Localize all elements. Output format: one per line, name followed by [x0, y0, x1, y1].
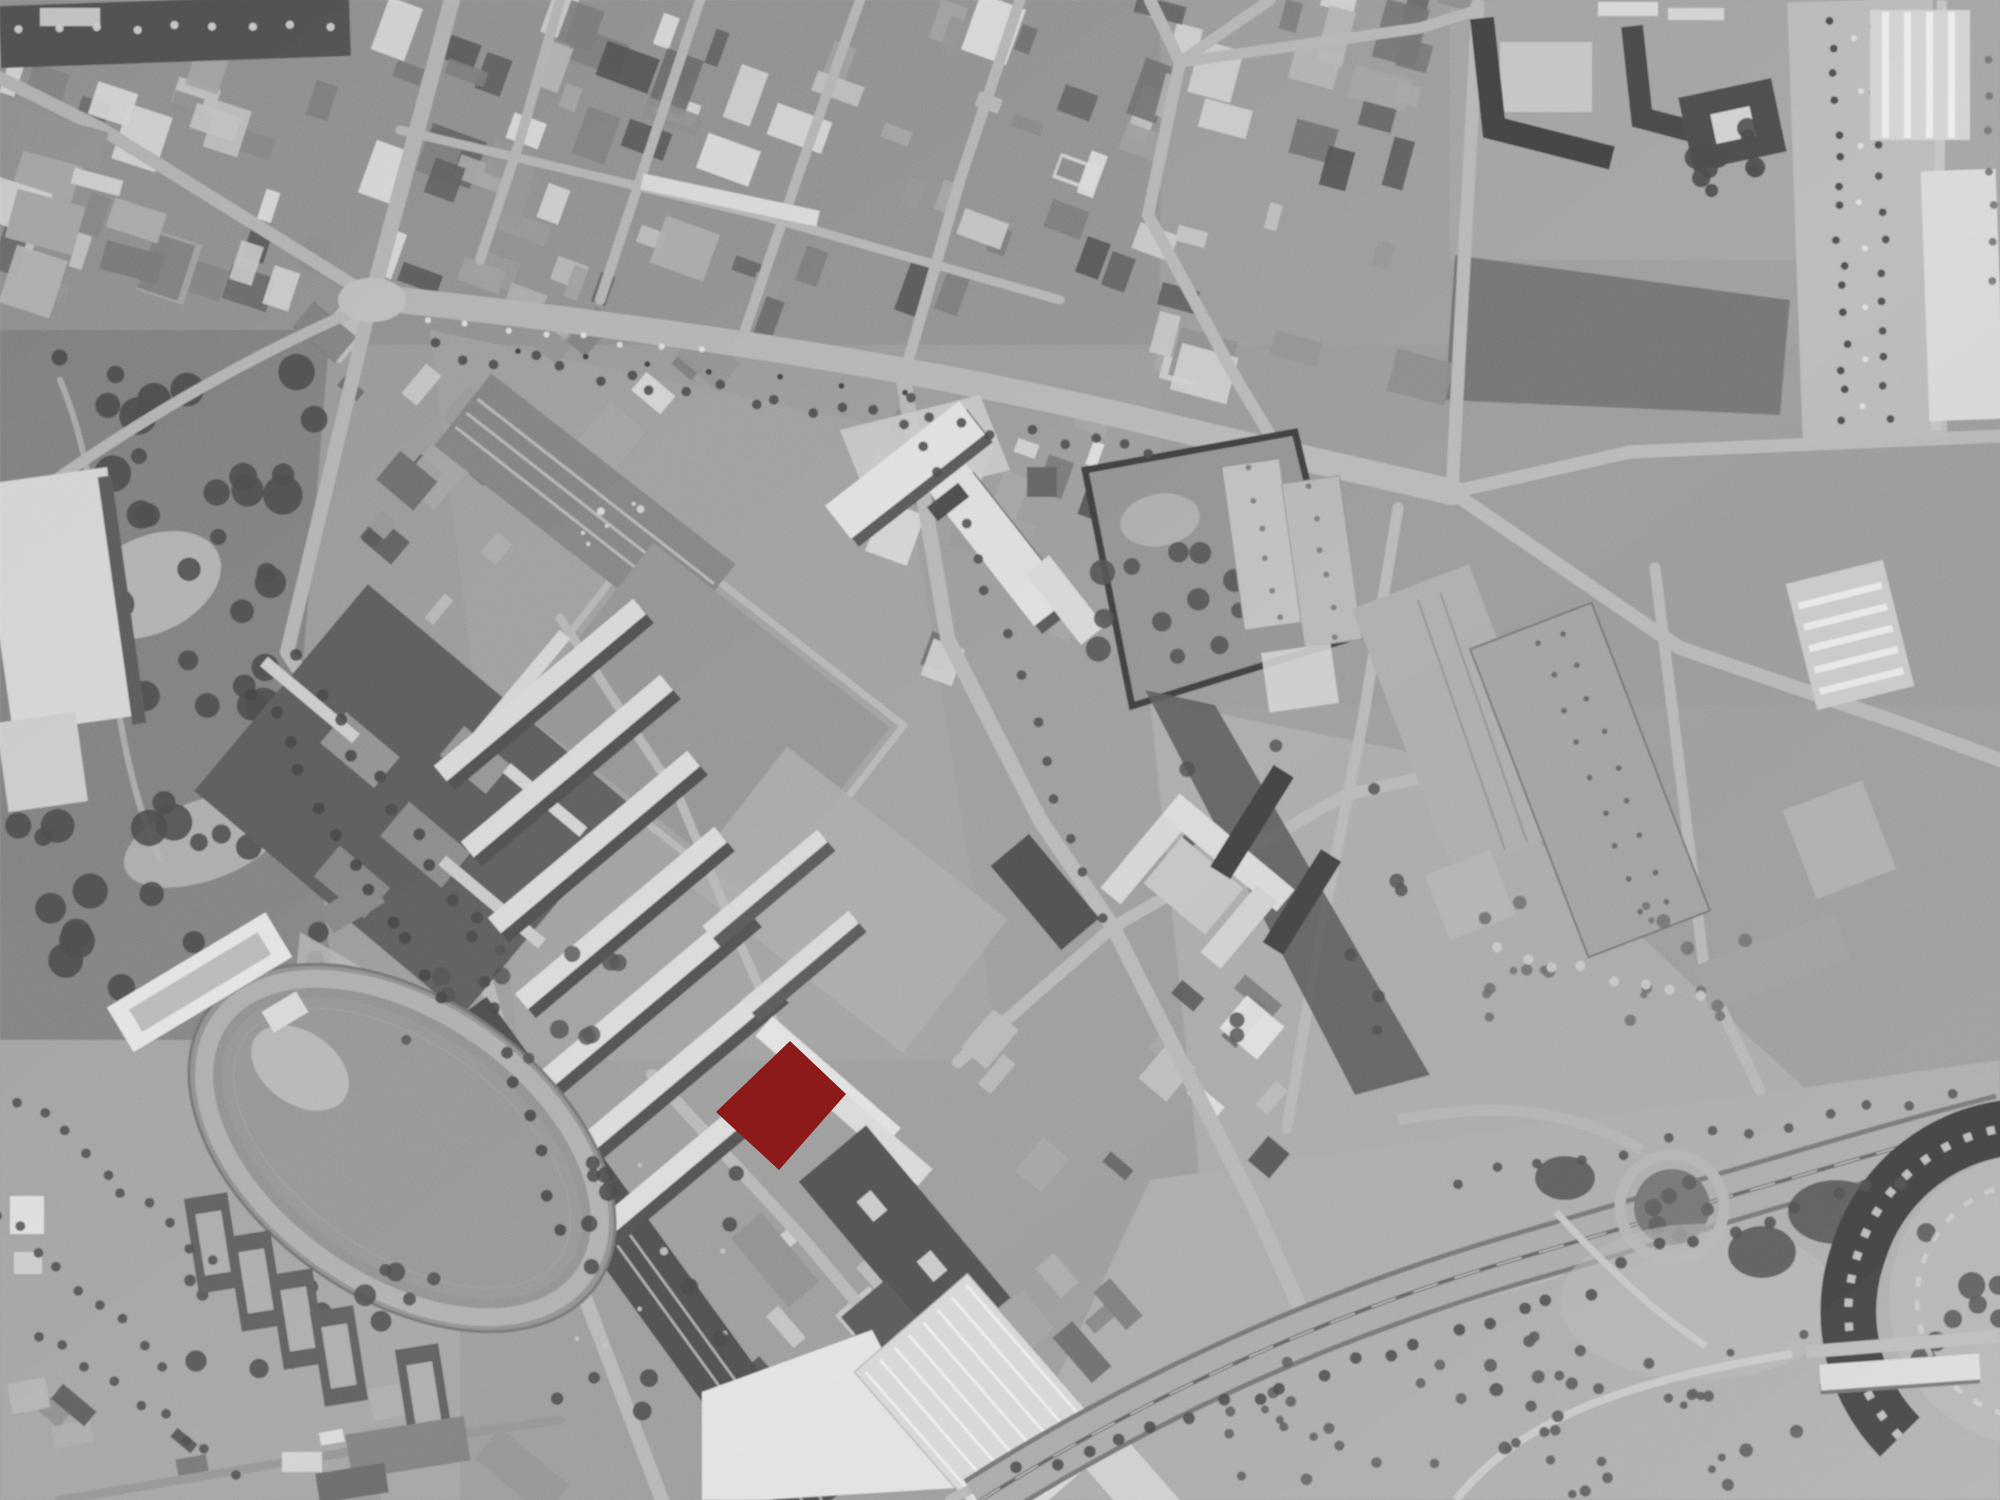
film-grain [0, 0, 2000, 1500]
aerial-photo [0, 0, 2000, 1500]
